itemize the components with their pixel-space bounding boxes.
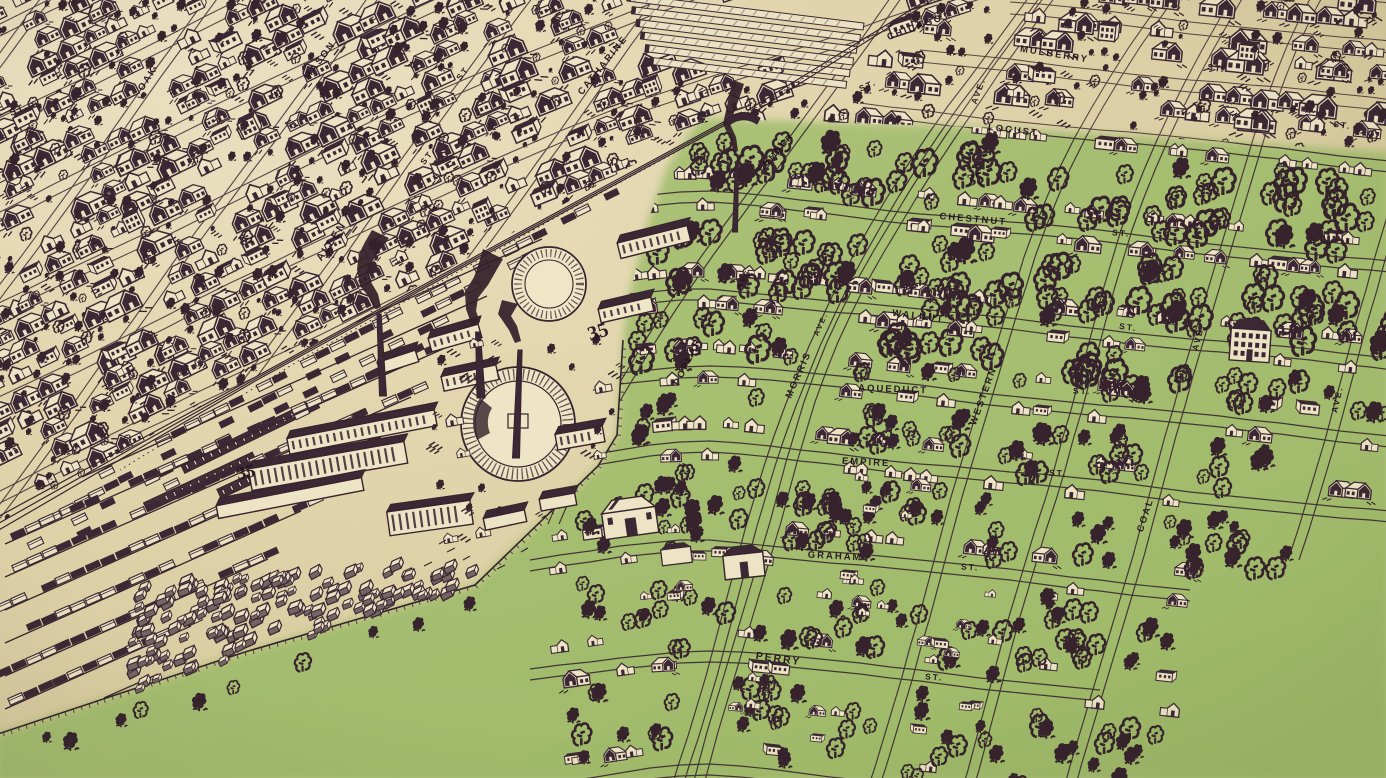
svg-text:ST.: ST. bbox=[1049, 468, 1068, 479]
svg-text:ST.: ST. bbox=[1073, 386, 1092, 397]
svg-text:ST.: ST. bbox=[1112, 227, 1131, 239]
svg-text:ST.: ST. bbox=[961, 562, 980, 573]
svg-text:ST.: ST. bbox=[925, 671, 944, 683]
